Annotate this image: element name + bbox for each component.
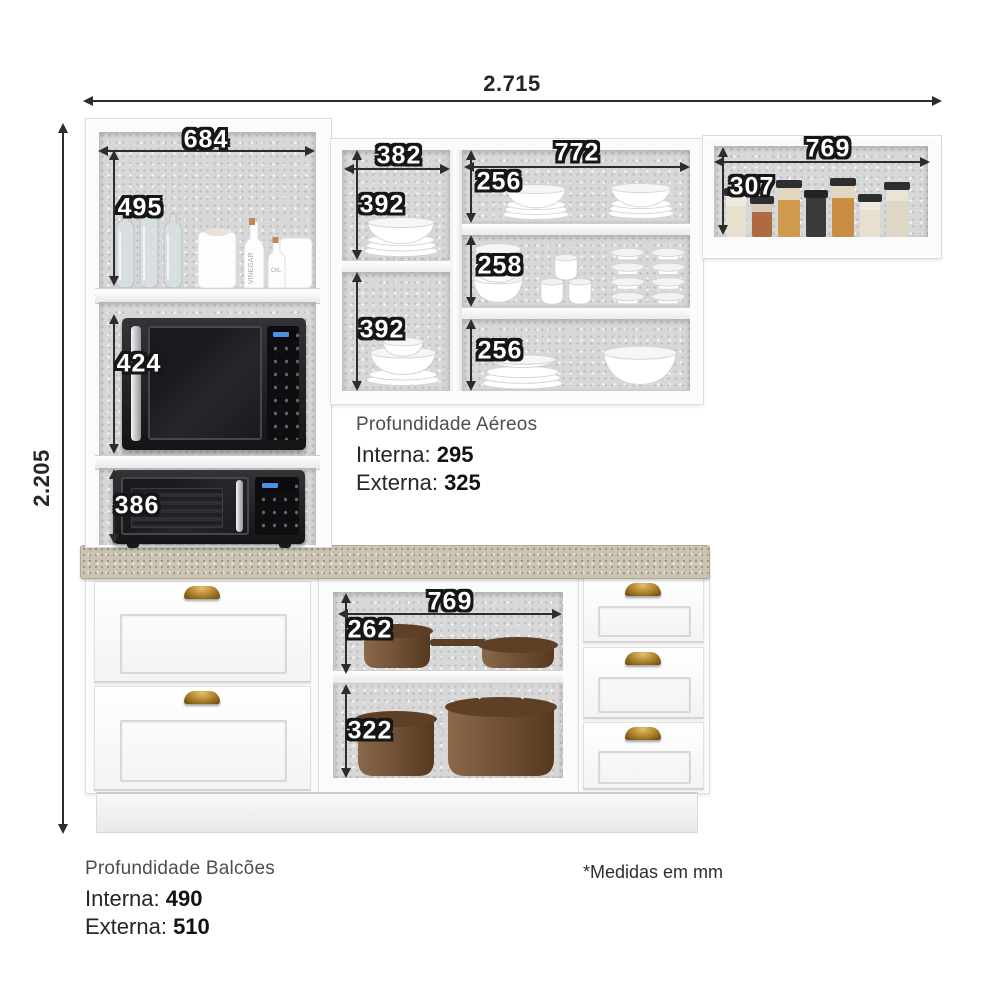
microwave-door	[148, 326, 262, 440]
ramekin-towers-icon	[602, 243, 694, 306]
dim-tall-mid-label: 424	[117, 350, 162, 379]
units-note: *Medidas em mm	[583, 862, 723, 883]
dim-mid-row3-line	[470, 321, 472, 389]
cups-stack-icon	[538, 252, 594, 306]
balcoes-depth-note: Profundidade Balcões Interna: 490 Extern…	[85, 858, 275, 940]
base-right-drawer-2-handle	[625, 652, 661, 665]
dim-mid-left-width-label: 382	[377, 142, 422, 171]
aereos-externa-value: 325	[444, 470, 481, 495]
dim-tall-top-line	[113, 152, 115, 284]
ceramic-oil-vinegar-icon: VINEGAR OIL	[196, 210, 314, 288]
dim-mid-left-bottom-line	[356, 274, 358, 389]
countertop	[80, 545, 710, 579]
base-right-drawer-3-handle	[625, 727, 661, 740]
overall-height-dim-line	[62, 125, 64, 832]
balcoes-externa-value: 510	[173, 914, 210, 939]
microwave-handle	[131, 326, 141, 441]
aereos-interna-label: Interna:	[356, 442, 431, 467]
vinegar-bottle-label: VINEGAR	[248, 252, 255, 284]
overall-width-label: 2.715	[483, 71, 541, 97]
oil-bottle-label: OIL	[271, 267, 282, 274]
dim-mid-row1-line	[470, 152, 472, 221]
balcoes-externa-label: Externa:	[85, 914, 167, 939]
base-open-shelf	[333, 670, 563, 684]
dim-tall-bottom-label: 386	[115, 492, 160, 521]
overall-height-label: 2.205	[29, 449, 55, 507]
aereos-title: Profundidade Aéreos	[356, 414, 537, 436]
overall-width-dim-line	[85, 100, 940, 102]
dim-mid-left-top-line	[356, 152, 358, 258]
dim-base-bottom-label: 322	[348, 717, 393, 746]
microwave-control-panel	[267, 326, 299, 440]
base-left-drawer-2-panel	[120, 720, 287, 782]
dim-right-height-line	[722, 149, 724, 233]
microwave-icon	[122, 318, 306, 450]
dim-mid-left-bottom-label: 392	[360, 316, 405, 345]
aereos-depth-note: Profundidade Aéreos Interna: 295 Externa…	[356, 414, 537, 496]
dim-right-width-label: 769	[806, 135, 851, 164]
oven-control-panel	[255, 477, 299, 535]
dim-mid-right-width-label: 772	[555, 139, 600, 168]
dim-mid-row1-label: 256	[477, 168, 522, 197]
base-right-drawer-2-panel	[598, 677, 691, 713]
base-right-drawer-3-panel	[598, 751, 691, 784]
dim-tall-top-label: 495	[118, 194, 163, 223]
plinth	[96, 792, 698, 833]
product-dimension-diagram: 2.715 2.205	[0, 0, 1000, 1000]
balcoes-interna-label: Interna:	[85, 886, 160, 911]
base-left-drawer-1-handle	[184, 586, 220, 599]
plate-stack-row1-right-icon	[600, 174, 682, 221]
dim-base-width-label: 769	[428, 588, 473, 617]
base-right-drawer-1-panel	[598, 606, 691, 637]
bowls-row3-icon	[600, 336, 680, 390]
dim-base-top-label: 262	[348, 616, 393, 645]
dim-mid-row2-label: 258	[478, 252, 523, 281]
base-right-drawer-1-handle	[625, 583, 661, 596]
aereos-externa-label: Externa:	[356, 470, 438, 495]
dim-mid-row3-label: 256	[478, 337, 523, 366]
balcoes-title: Profundidade Balcões	[85, 858, 275, 880]
oven-handle	[236, 480, 243, 532]
dim-tall-mid-line	[113, 316, 115, 452]
upper-middle-divider	[450, 150, 462, 391]
base-left-drawer-2-handle	[184, 691, 220, 704]
dim-right-height-label: 307	[730, 173, 775, 202]
dim-mid-left-top-label: 392	[360, 191, 405, 220]
aereos-interna-value: 295	[437, 442, 474, 467]
dim-tall-width-label: 684	[184, 126, 229, 155]
dim-mid-row2-line	[470, 237, 472, 305]
balcoes-interna-value: 490	[166, 886, 203, 911]
base-left-drawer-1-panel	[120, 614, 287, 674]
